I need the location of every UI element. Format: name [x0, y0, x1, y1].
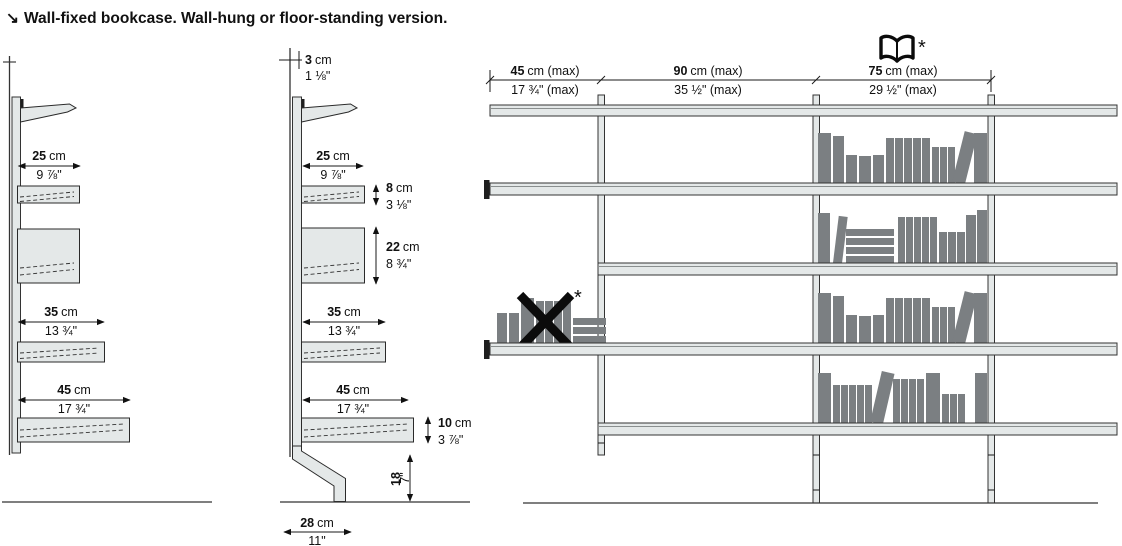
svg-text:45cm (max): 45cm (max): [511, 64, 580, 78]
dim-depth-25: 25cm 9 ⅞": [19, 149, 81, 182]
dim-box-height-22: 22cm 8 ¾": [376, 227, 420, 284]
dim-depth-35: 35cm 13 ¾": [19, 305, 105, 338]
svg-text:17 ¾": 17 ¾": [58, 402, 90, 416]
books-row: [818, 131, 987, 185]
dim-shelf-height-10: 10cm 3 ⅞": [428, 416, 472, 447]
floor-leg: [293, 446, 346, 502]
shelf-25: [302, 186, 365, 203]
shelf-35: [302, 342, 386, 362]
svg-text:35cm: 35cm: [44, 305, 78, 319]
svg-text:10cm: 10cm: [438, 416, 472, 430]
floor-standing-side-view: 3cm 1 ⅛" 25cm 9 ⅞" 8cm 3 ⅛": [279, 48, 472, 546]
dim-depth-25: 25cm 9 ⅞": [303, 149, 363, 182]
svg-text:28cm: 28cm: [300, 516, 334, 530]
svg-text:9 ⅞": 9 ⅞": [320, 168, 345, 182]
shelf-level-4: [490, 343, 1117, 355]
bookcase-dimension-diagram: ↘Wall-fixed bookcase. Wall-hung or floor…: [0, 0, 1122, 546]
svg-text:25cm: 25cm: [32, 149, 66, 163]
post-3: [988, 95, 995, 503]
dim-depth-35: 35cm 13 ¾": [303, 305, 385, 338]
svg-text:3cm: 3cm: [305, 53, 332, 67]
svg-text:29 ½" (max): 29 ½" (max): [869, 83, 937, 97]
shelf-25: [18, 186, 80, 203]
shelf-level-3: [598, 263, 1117, 275]
upright-post: [293, 97, 302, 449]
crossed-books: *: [497, 287, 606, 348]
svg-text:8 ¾": 8 ¾": [386, 257, 411, 271]
svg-text:35 ½" (max): 35 ½" (max): [674, 83, 742, 97]
dim-depth-45: 45cm 17 ¾": [303, 383, 408, 416]
shelf-35: [18, 342, 105, 362]
wall-hung-side-view: 25cm 9 ⅞" 35cm 13 ¾" 45cm 17 ¾: [2, 56, 212, 502]
dim-chain: 45cm (max) 17 ¾" (max) 90cm (max) 35 ½" …: [486, 64, 995, 97]
dim-wall-gap-3: 3cm 1 ⅛": [279, 51, 332, 83]
svg-text:3 ⅞": 3 ⅞": [438, 433, 463, 447]
shelf-bracket: [302, 99, 358, 122]
dim-depth-45: 45cm 17 ¾": [19, 383, 131, 416]
svg-text:13 ¾": 13 ¾": [328, 324, 360, 338]
shelf-bracket: [21, 99, 77, 122]
open-book-icon: [881, 36, 913, 61]
front-elevation-view: * 45cm (max) 17 ¾" (max) 90cm (max) 35 ½…: [484, 36, 1117, 503]
svg-text:22cm: 22cm: [386, 240, 420, 254]
svg-text:17 ¾" (max): 17 ¾" (max): [511, 83, 579, 97]
svg-text:17 ¾": 17 ¾": [337, 402, 369, 416]
shelf-level-1: [490, 105, 1117, 116]
dim-base-height-18: 18 7": [389, 455, 412, 501]
svg-text:1 ⅛": 1 ⅛": [305, 69, 330, 83]
svg-text:13 ¾": 13 ¾": [45, 324, 77, 338]
svg-text:75cm (max): 75cm (max): [869, 64, 938, 78]
svg-text:45cm: 45cm: [336, 383, 370, 397]
svg-text:45cm: 45cm: [57, 383, 91, 397]
shelf-45: [302, 418, 414, 442]
shelf-level-2: [490, 183, 1117, 195]
books-row: [818, 210, 987, 264]
svg-text:90cm (max): 90cm (max): [674, 64, 743, 78]
shelf-end-cap: [484, 180, 490, 199]
page-title: ↘Wall-fixed bookcase. Wall-hung or floor…: [6, 10, 447, 27]
book-note-asterisk: *: [918, 37, 926, 59]
books-row: [818, 291, 987, 345]
svg-text:35cm: 35cm: [327, 305, 361, 319]
svg-text:3 ⅛": 3 ⅛": [386, 198, 411, 212]
shelf-45: [18, 418, 130, 442]
svg-text:7": 7": [398, 472, 412, 483]
shelves: [484, 105, 1117, 435]
storage-box-25: [18, 229, 80, 283]
shelf-end-cap: [484, 340, 490, 359]
shelf-level-5: [598, 423, 1117, 435]
dim-shelf-height-8: 8cm 3 ⅛": [376, 181, 413, 212]
books-row: [818, 371, 987, 425]
dim-base-depth-28: 28cm 11": [284, 516, 351, 546]
svg-text:11": 11": [308, 534, 325, 546]
svg-text:9 ⅞": 9 ⅞": [36, 168, 61, 182]
svg-text:25cm: 25cm: [316, 149, 350, 163]
svg-text:8cm: 8cm: [386, 181, 413, 195]
storage-box-25: [302, 228, 365, 283]
cross-note-asterisk: *: [574, 287, 582, 309]
title-arrow-icon: ↘: [6, 10, 19, 27]
